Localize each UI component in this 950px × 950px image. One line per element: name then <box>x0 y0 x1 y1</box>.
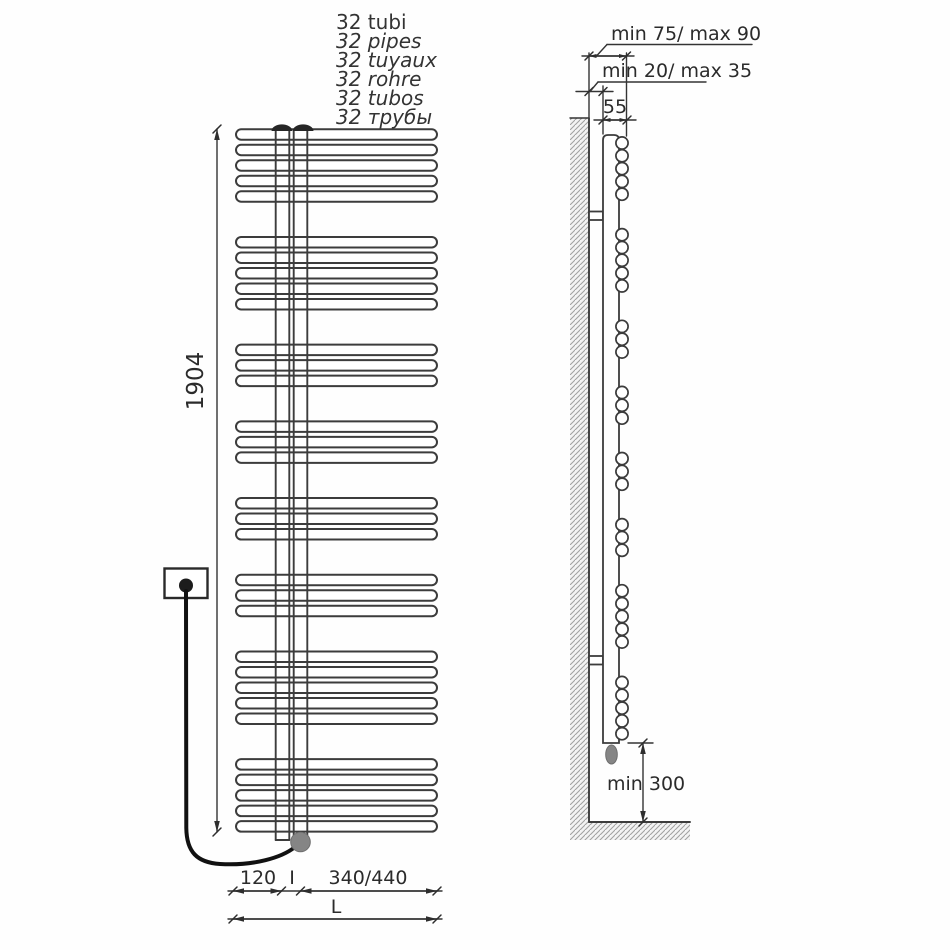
pipe <box>236 145 437 156</box>
pipe <box>236 452 437 463</box>
pipe <box>236 590 437 601</box>
collector-cap-left <box>272 124 293 131</box>
front-view: 1904 120 I 340/440 L <box>165 124 443 923</box>
pipe <box>236 498 437 509</box>
pipe <box>236 360 437 371</box>
pipe-end-icon <box>616 346 628 358</box>
pipe-end-icon <box>616 453 628 465</box>
pipes-group <box>236 129 437 831</box>
pipe <box>236 529 437 540</box>
pipe-end-icon <box>616 241 628 253</box>
pipe <box>236 283 437 294</box>
leader-line <box>597 45 608 57</box>
dim-340-440-label: 340/440 <box>329 867 408 889</box>
pipe-end-icon <box>616 229 628 241</box>
wall-distance-lower-label: min 20/ max 35 <box>602 60 752 82</box>
heating-element-side <box>606 745 618 764</box>
pipe <box>236 252 437 263</box>
height-dimension: 1904 <box>183 125 221 836</box>
pipe-end-icon <box>616 386 628 398</box>
leader-line <box>590 82 598 92</box>
depth-dimension: 55 <box>594 96 636 124</box>
total-width-label: L <box>331 896 342 918</box>
pipe <box>236 376 437 387</box>
wall-bracket-top <box>589 212 603 221</box>
pipe <box>236 176 437 187</box>
pipe <box>236 606 437 617</box>
pipe-end-icon <box>616 320 628 332</box>
dim-interaxis-label: I <box>289 867 295 889</box>
pipe-end-icon <box>616 188 628 200</box>
pipe-end-icon <box>616 465 628 477</box>
pipe-end-icon <box>616 728 628 740</box>
pipe-end-icon <box>616 689 628 701</box>
pipe-end-icon <box>616 544 628 556</box>
pipe-end-icon <box>616 585 628 597</box>
pipe <box>236 421 437 432</box>
drawing-canvas: 32 tubi 32 pipes 32 tuyaux 32 rohre 32 t… <box>0 0 950 950</box>
pipe <box>236 575 437 586</box>
pipe <box>236 667 437 678</box>
pipe-end-icon <box>616 531 628 543</box>
side-view: min 75/ max 90 min 20/ max 35 55 min <box>570 23 761 840</box>
pipe <box>236 790 437 801</box>
pipe-end-icon <box>616 175 628 187</box>
side-collector-tube <box>603 135 619 743</box>
pipe <box>236 514 437 525</box>
depth-label: 55 <box>603 96 627 118</box>
pipe <box>236 682 437 693</box>
wall-hatch <box>570 118 589 840</box>
pipe-end-icon <box>616 598 628 610</box>
floor-clearance-dimension: min 300 <box>607 739 685 826</box>
pipe-end-icon <box>616 137 628 149</box>
collector-tubes <box>272 124 314 840</box>
pipe <box>236 759 437 770</box>
pipe-end-icon <box>616 623 628 635</box>
bottom-dimensions: 120 I 340/440 L <box>228 867 442 923</box>
dim-120-label: 120 <box>240 867 276 889</box>
pipe-end-icon <box>616 333 628 345</box>
pipe-end-icon <box>616 254 628 266</box>
pipe <box>236 651 437 662</box>
floor-clearance-label: min 300 <box>607 773 685 795</box>
pipe <box>236 345 437 356</box>
pipe <box>236 821 437 832</box>
pipe-end-icon <box>616 163 628 175</box>
heating-element-front <box>291 832 311 852</box>
pipe-end-icon <box>616 519 628 531</box>
pipe <box>236 160 437 171</box>
height-dimension-label: 1904 <box>183 352 209 411</box>
pipe-end-icon <box>616 267 628 279</box>
pipe-end-icon <box>616 636 628 648</box>
pipe-end-icon <box>616 412 628 424</box>
pipe <box>236 237 437 248</box>
pipe <box>236 775 437 786</box>
pipe <box>236 698 437 709</box>
pipe-end-icon <box>616 676 628 688</box>
pipe-end-icon <box>616 150 628 162</box>
pipe <box>236 299 437 310</box>
pipe-end-icon <box>616 399 628 411</box>
pipe <box>236 268 437 279</box>
pipe <box>236 129 437 140</box>
radiator-technical-drawing: 32 tubi 32 pipes 32 tuyaux 32 rohre 32 t… <box>0 0 950 950</box>
pipe <box>236 437 437 448</box>
wall-distance-upper-label: min 75/ max 90 <box>611 23 761 45</box>
pipe <box>236 713 437 724</box>
pipe-end-icon <box>616 702 628 714</box>
title-block: 32 tubi 32 pipes 32 tuyaux 32 rohre 32 t… <box>336 10 437 129</box>
pipe-end-icon <box>616 610 628 622</box>
pipe <box>236 191 437 202</box>
pipe-end-icon <box>616 715 628 727</box>
pipe <box>236 806 437 817</box>
pipe-end-icon <box>616 478 628 490</box>
title-line-russian: 32 трубы <box>336 105 432 129</box>
wall-bracket-bottom <box>589 656 603 665</box>
collector-cap-right <box>293 124 314 131</box>
pipe-end-icon <box>616 280 628 292</box>
